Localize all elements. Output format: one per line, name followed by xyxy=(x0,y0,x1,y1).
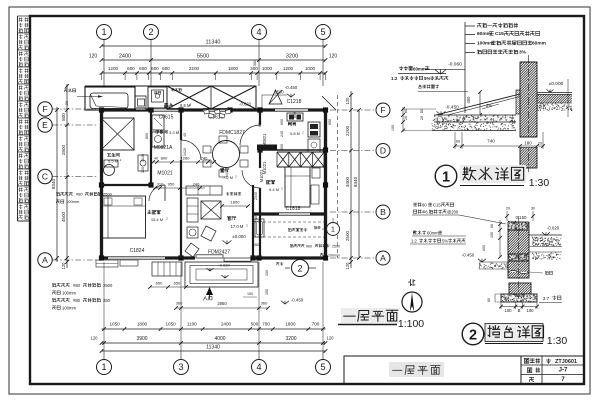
svg-text:60: 60 xyxy=(422,203,427,208)
svg-text:4500: 4500 xyxy=(61,211,66,222)
svg-text:60mm: 60mm xyxy=(532,41,546,47)
svg-text:11340: 11340 xyxy=(206,345,220,351)
svg-text:17.0 M: 17.0 M xyxy=(231,224,244,229)
svg-text:1420: 1420 xyxy=(183,148,187,156)
svg-text:60mm: 60mm xyxy=(413,66,426,71)
svg-text:Φ6: Φ6 xyxy=(422,210,428,215)
svg-text:100: 100 xyxy=(490,232,494,238)
svg-text:600: 600 xyxy=(162,66,170,71)
svg-text:ZTJ0601: ZTJ0601 xyxy=(555,359,577,365)
svg-text:1100: 1100 xyxy=(187,322,197,327)
svg-text:1:100: 1:100 xyxy=(398,318,424,330)
svg-text:1: 1 xyxy=(331,227,335,234)
svg-text:7.2 M: 7.2 M xyxy=(223,175,233,180)
svg-text:1:2: 1:2 xyxy=(391,76,398,81)
svg-text:3%: 3% xyxy=(486,103,492,108)
svg-text:600: 600 xyxy=(482,245,486,251)
svg-text:-0.450: -0.450 xyxy=(285,85,298,90)
svg-text:60: 60 xyxy=(456,140,460,144)
svg-text:1: 1 xyxy=(442,170,450,186)
svg-text:A: A xyxy=(42,255,48,265)
svg-text:#80: #80 xyxy=(73,298,81,303)
svg-text:650: 650 xyxy=(328,119,332,125)
svg-text:100mm: 100mm xyxy=(66,199,80,204)
svg-text:800: 800 xyxy=(61,113,66,121)
svg-text:360: 360 xyxy=(176,301,183,306)
svg-text:5%: 5% xyxy=(424,76,430,81)
svg-text:1200: 1200 xyxy=(283,66,294,71)
svg-text:2: 2 xyxy=(297,264,302,274)
svg-text:100mm: 100mm xyxy=(328,253,340,257)
svg-text:M1021: M1021 xyxy=(157,171,173,177)
svg-text:8340: 8340 xyxy=(51,178,56,189)
svg-text:2950: 2950 xyxy=(217,301,227,306)
svg-text:3900: 3900 xyxy=(136,336,147,342)
svg-text:700: 700 xyxy=(312,322,320,327)
svg-text:20: 20 xyxy=(538,142,542,146)
svg-text:5: 5 xyxy=(320,27,325,37)
svg-text:120: 120 xyxy=(345,262,350,270)
svg-text:M1021: M1021 xyxy=(259,169,264,182)
svg-text:120: 120 xyxy=(329,54,338,60)
svg-text:#80: #80 xyxy=(76,192,83,197)
svg-text:60: 60 xyxy=(490,224,494,228)
svg-text:-0.060: -0.060 xyxy=(448,62,462,68)
svg-text:1800: 1800 xyxy=(231,200,241,205)
svg-text:1000: 1000 xyxy=(305,66,316,71)
svg-text:C0615: C0615 xyxy=(159,115,174,121)
svg-text:F: F xyxy=(380,105,385,115)
svg-text:5500: 5500 xyxy=(197,54,209,60)
svg-text:#60: #60 xyxy=(306,244,312,248)
svg-text:100mm: 100mm xyxy=(477,41,494,47)
svg-text:120: 120 xyxy=(141,167,145,173)
svg-text:80: 80 xyxy=(487,298,491,302)
svg-text:5%: 5% xyxy=(442,239,448,244)
svg-text:1:30: 1:30 xyxy=(529,177,550,189)
svg-text:C15: C15 xyxy=(433,203,441,208)
svg-text:240: 240 xyxy=(280,131,284,137)
svg-text:800: 800 xyxy=(161,156,168,161)
svg-text:120: 120 xyxy=(327,336,335,341)
svg-text:650: 650 xyxy=(293,112,297,118)
svg-text:±0.000: ±0.000 xyxy=(549,81,564,87)
svg-text:120: 120 xyxy=(91,336,99,341)
svg-text:600: 600 xyxy=(151,66,159,71)
svg-text:100: 100 xyxy=(391,125,395,131)
svg-text:700: 700 xyxy=(262,322,270,327)
svg-text:1000: 1000 xyxy=(262,66,273,71)
svg-text:120: 120 xyxy=(89,54,98,60)
svg-text:5.8 M: 5.8 M xyxy=(290,131,300,136)
svg-text:2200: 2200 xyxy=(345,125,350,136)
svg-text:C: C xyxy=(42,172,48,182)
svg-text:650: 650 xyxy=(174,281,181,286)
svg-text:500: 500 xyxy=(251,322,259,327)
svg-text:400: 400 xyxy=(466,96,471,104)
svg-text:@200: @200 xyxy=(447,210,459,215)
svg-text:2200: 2200 xyxy=(189,66,200,71)
svg-text:1:2: 1:2 xyxy=(411,239,417,244)
svg-text:C15: C15 xyxy=(495,31,504,37)
svg-text:800: 800 xyxy=(258,121,262,127)
svg-text:2340: 2340 xyxy=(254,192,258,200)
svg-text:3:7: 3:7 xyxy=(543,296,550,301)
svg-text:M0821: M0821 xyxy=(262,133,267,146)
svg-text:8340: 8340 xyxy=(353,176,358,187)
svg-text:E: E xyxy=(42,120,48,130)
svg-text:M0821A: M0821A xyxy=(154,145,173,151)
svg-text:C1818: C1818 xyxy=(286,206,301,212)
svg-text:650: 650 xyxy=(156,281,163,286)
svg-text:1: 1 xyxy=(101,362,106,372)
svg-text:40: 40 xyxy=(183,133,187,137)
svg-text:1050: 1050 xyxy=(109,322,120,327)
svg-text:2500: 2500 xyxy=(345,230,350,241)
svg-text:100: 100 xyxy=(527,308,535,313)
svg-text:-0.450: -0.450 xyxy=(291,298,304,303)
svg-text:B: B xyxy=(518,308,521,313)
svg-text:-0.020: -0.020 xyxy=(547,226,560,231)
svg-text:150: 150 xyxy=(265,289,269,295)
svg-text:-0.450: -0.450 xyxy=(462,253,475,258)
svg-text:15.4 M: 15.4 M xyxy=(151,217,163,222)
svg-text:600: 600 xyxy=(127,66,135,71)
svg-text:950: 950 xyxy=(168,182,175,187)
svg-text:2800: 2800 xyxy=(61,144,66,155)
svg-text:600: 600 xyxy=(139,66,147,71)
svg-text:60: 60 xyxy=(420,109,424,113)
svg-text:1800: 1800 xyxy=(285,322,296,327)
svg-text:180: 180 xyxy=(524,141,532,146)
svg-text:20: 20 xyxy=(506,207,510,211)
svg-text:J-7: J-7 xyxy=(559,368,568,374)
svg-text:C1218: C1218 xyxy=(287,99,302,105)
svg-text:300: 300 xyxy=(252,59,257,66)
svg-text:1800: 1800 xyxy=(228,66,239,71)
svg-text:60mm: 60mm xyxy=(427,231,439,236)
svg-text:20: 20 xyxy=(404,116,408,120)
svg-text:-0.020: -0.020 xyxy=(239,102,252,107)
svg-text:3200: 3200 xyxy=(285,336,296,342)
svg-text:20: 20 xyxy=(65,101,69,105)
svg-text:120: 120 xyxy=(61,262,66,270)
svg-text:120: 120 xyxy=(345,97,350,105)
svg-text:9.4 M: 9.4 M xyxy=(269,187,279,192)
svg-text:±0.000: ±0.000 xyxy=(232,234,246,239)
svg-text:2500: 2500 xyxy=(103,283,113,288)
svg-text:A: A xyxy=(380,253,386,263)
svg-text:1300: 1300 xyxy=(254,214,258,222)
svg-text:1800: 1800 xyxy=(137,322,148,327)
svg-text:5.5 M: 5.5 M xyxy=(108,159,118,164)
svg-text:1: 1 xyxy=(101,27,106,37)
svg-text:3: 3 xyxy=(178,362,183,372)
svg-text:3400: 3400 xyxy=(345,176,350,187)
svg-text:1:30: 1:30 xyxy=(547,335,568,347)
svg-text:4000: 4000 xyxy=(214,336,225,342)
svg-text:100mm: 100mm xyxy=(62,290,76,295)
svg-text:FDM2427: FDM2427 xyxy=(208,250,230,256)
svg-text:-0.020: -0.020 xyxy=(218,263,230,268)
svg-text:600: 600 xyxy=(280,144,284,150)
svg-text:5: 5 xyxy=(320,362,325,372)
svg-text:1640: 1640 xyxy=(141,154,145,162)
svg-text:-0.450: -0.450 xyxy=(445,105,459,111)
svg-text:2400: 2400 xyxy=(119,54,131,60)
svg-text:600: 600 xyxy=(280,119,284,125)
svg-text:150: 150 xyxy=(247,292,253,296)
svg-text:100: 100 xyxy=(505,308,513,313)
svg-text:30: 30 xyxy=(531,207,535,211)
svg-text:4: 4 xyxy=(256,362,261,372)
svg-text:1200: 1200 xyxy=(108,66,119,71)
svg-text:FDMC1827: FDMC1827 xyxy=(219,130,245,136)
svg-text:11340: 11340 xyxy=(206,40,221,46)
svg-text:2500: 2500 xyxy=(332,244,340,248)
svg-text:3200: 3200 xyxy=(286,54,298,60)
svg-text:650: 650 xyxy=(253,242,260,247)
svg-text:2: 2 xyxy=(469,328,477,344)
svg-text:0.150: 0.150 xyxy=(516,215,528,220)
svg-text:100mm: 100mm xyxy=(62,305,76,310)
svg-text:3%: 3% xyxy=(519,50,527,56)
svg-text:#80: #80 xyxy=(73,283,81,288)
svg-text:D: D xyxy=(380,146,386,156)
svg-text:F: F xyxy=(42,104,47,114)
svg-text:130: 130 xyxy=(265,270,269,276)
svg-text:4: 4 xyxy=(256,27,261,37)
svg-text:20: 20 xyxy=(420,116,424,120)
svg-text:B: B xyxy=(380,207,386,217)
svg-text:2400: 2400 xyxy=(221,322,232,327)
svg-text:1050: 1050 xyxy=(165,322,176,327)
svg-text:40: 40 xyxy=(154,157,158,161)
svg-text:60mm: 60mm xyxy=(477,31,491,37)
svg-text:C1824: C1824 xyxy=(130,248,145,254)
svg-text:2: 2 xyxy=(148,27,153,37)
svg-text:310: 310 xyxy=(157,182,164,187)
svg-text:360: 360 xyxy=(261,301,268,306)
svg-text:60: 60 xyxy=(404,109,408,113)
svg-text:740: 740 xyxy=(487,139,495,144)
svg-text:250: 250 xyxy=(103,298,111,303)
svg-text:800: 800 xyxy=(145,133,149,139)
